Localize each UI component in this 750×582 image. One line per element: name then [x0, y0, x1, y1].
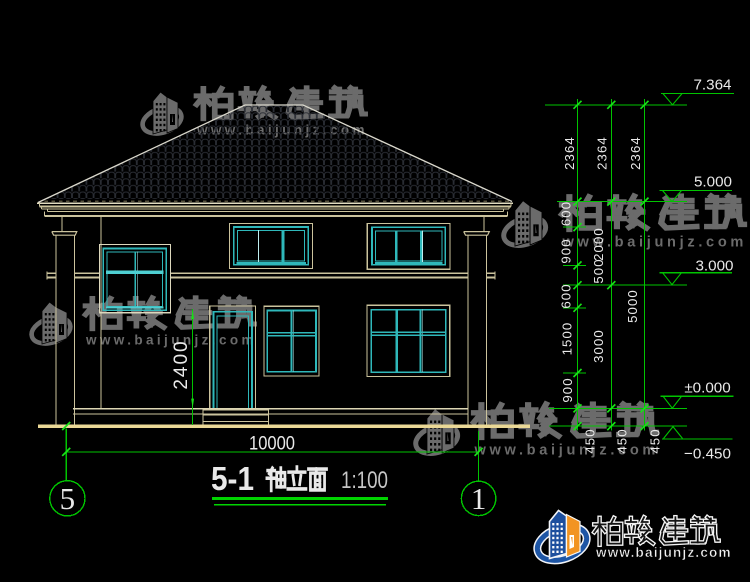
- svg-text:3000: 3000: [591, 329, 606, 363]
- svg-text:1500: 1500: [560, 322, 575, 356]
- svg-text:www.baijunjz.com: www.baijunjz.com: [595, 545, 732, 560]
- svg-text:3.000: 3.000: [695, 258, 733, 275]
- svg-text:5.000: 5.000: [694, 174, 732, 191]
- svg-text:2364: 2364: [562, 136, 577, 170]
- svg-text:450: 450: [648, 428, 663, 453]
- svg-text:900: 900: [559, 238, 574, 263]
- svg-text:450: 450: [583, 428, 598, 453]
- svg-text:2364: 2364: [628, 136, 643, 170]
- svg-text:5000: 5000: [625, 289, 640, 323]
- svg-text:−0.450: −0.450: [684, 446, 731, 463]
- svg-text:600: 600: [559, 201, 574, 226]
- svg-text:600: 600: [559, 283, 574, 308]
- svg-text:1:100: 1:100: [341, 467, 388, 494]
- svg-text:1: 1: [471, 481, 487, 516]
- svg-text:2000: 2000: [591, 227, 606, 261]
- svg-text:±0.000: ±0.000: [684, 379, 730, 396]
- svg-text:7.364: 7.364: [693, 77, 731, 94]
- svg-text:900: 900: [560, 377, 575, 402]
- svg-text:5: 5: [60, 481, 76, 516]
- svg-text:5-1: 5-1: [211, 460, 254, 497]
- svg-text:2400: 2400: [171, 339, 192, 389]
- svg-text:500: 500: [591, 258, 606, 283]
- svg-text:10000: 10000: [249, 433, 295, 455]
- svg-text:450: 450: [615, 428, 630, 453]
- svg-text:2364: 2364: [595, 136, 610, 170]
